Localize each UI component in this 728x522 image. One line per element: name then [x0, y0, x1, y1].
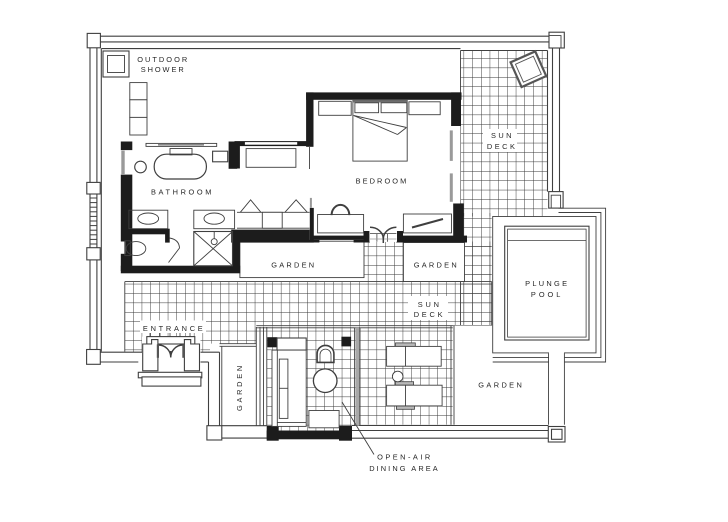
svg-text:BATHROOM: BATHROOM	[151, 188, 211, 197]
svg-text:OPEN-AIR: OPEN-AIR	[377, 453, 430, 462]
svg-text:SUN: SUN	[418, 300, 439, 309]
svg-text:OUTDOOR: OUTDOOR	[137, 55, 187, 64]
svg-text:SUN: SUN	[491, 131, 512, 140]
